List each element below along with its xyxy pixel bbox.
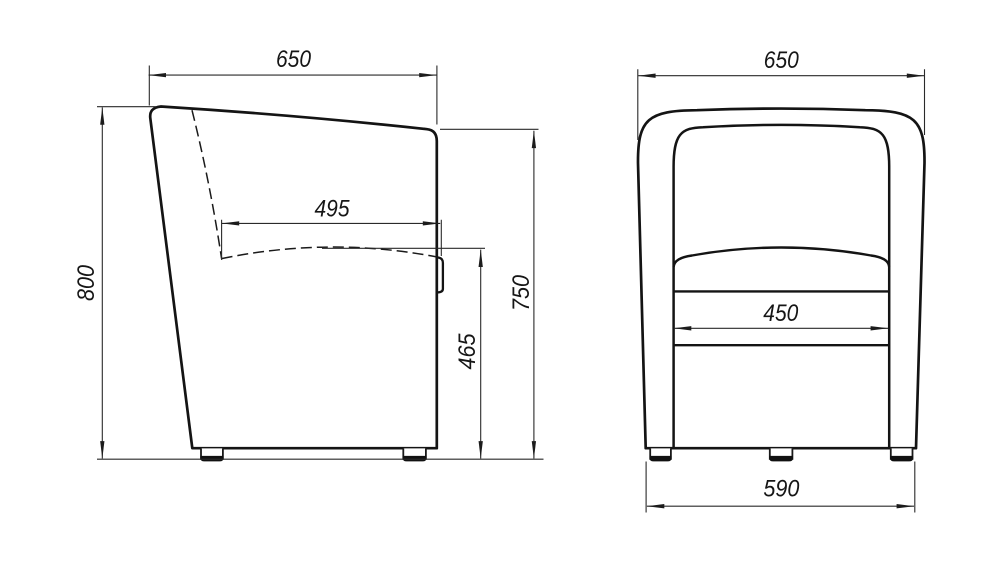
svg-text:650: 650 [276,46,312,73]
svg-text:450: 450 [763,300,799,327]
svg-text:590: 590 [763,475,800,502]
svg-text:650: 650 [764,47,800,74]
svg-text:750: 750 [508,274,535,311]
svg-text:495: 495 [315,195,351,222]
svg-text:800: 800 [73,264,100,301]
svg-text:465: 465 [454,333,481,370]
